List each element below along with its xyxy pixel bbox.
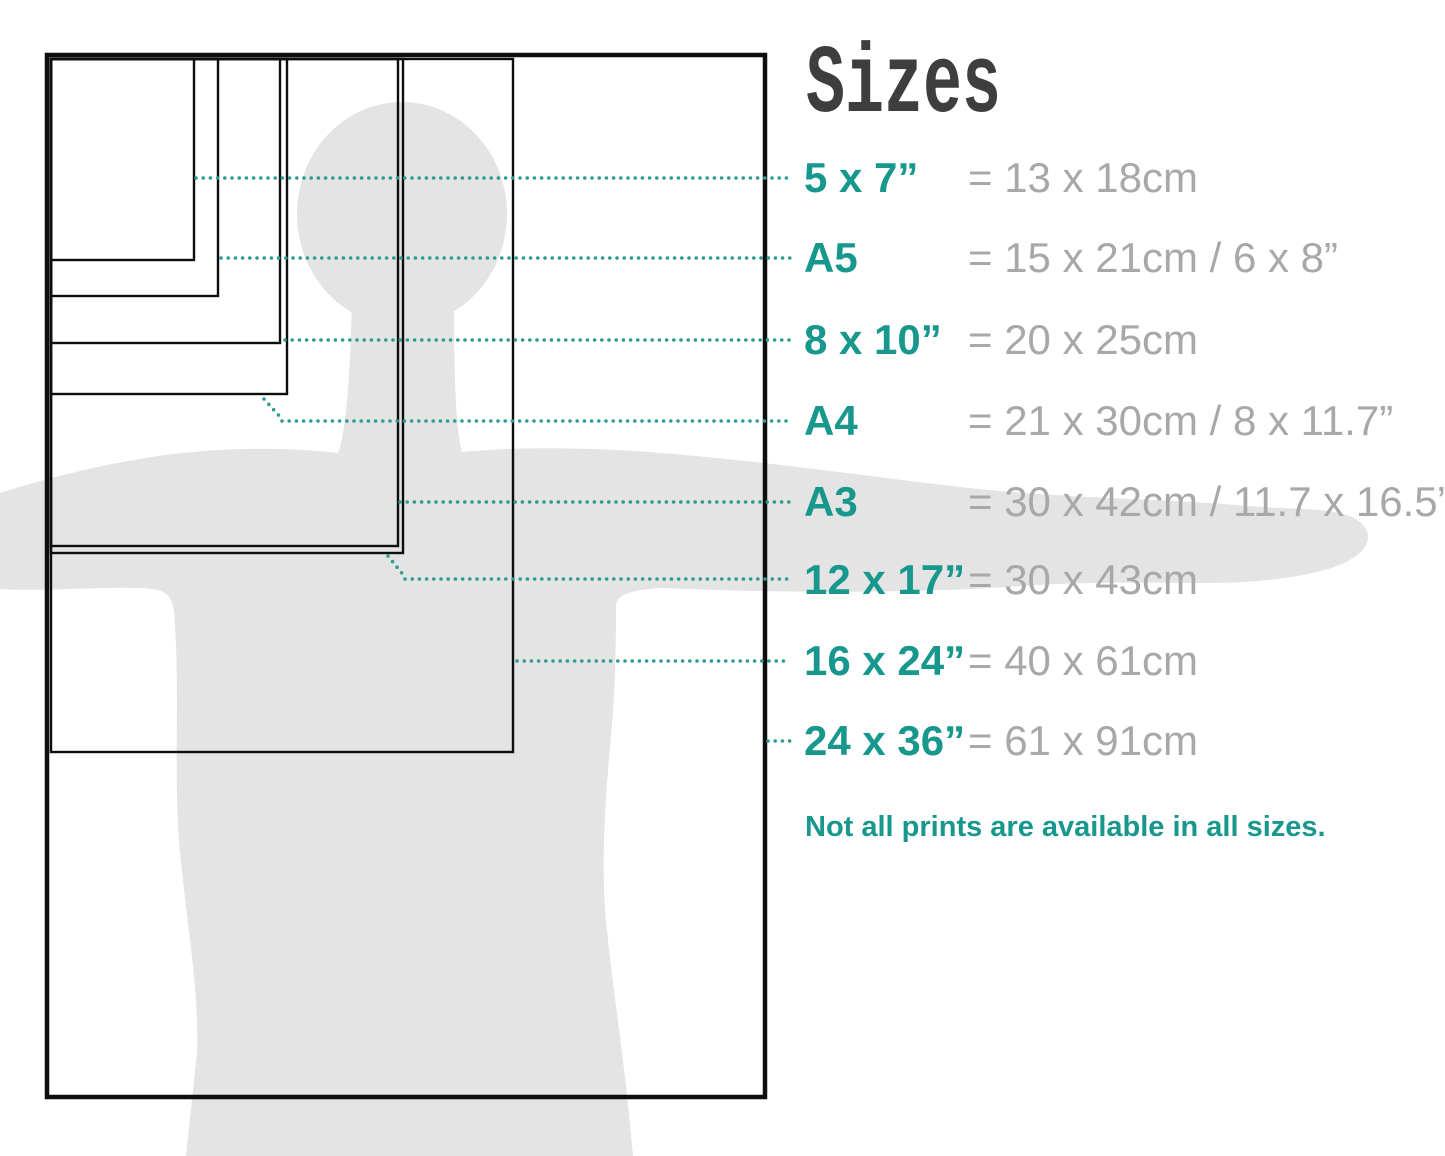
availability-note: Not all prints are available in all size…	[805, 811, 1326, 844]
size-row-a4: A4= 21 x 30cm / 8 x 11.7”	[804, 393, 1445, 449]
size-guide-infographic: Sizes 5 x 7”= 13 x 18cmA5= 15 x 21cm / 6…	[0, 0, 1445, 1156]
size-label-5x7: 5 x 7”	[804, 154, 968, 202]
size-label-8x10: 8 x 10”	[804, 316, 968, 364]
size-row-16x24: 16 x 24”= 40 x 61cm	[804, 633, 1445, 689]
size-label-16x24: 16 x 24”	[804, 637, 968, 685]
size-row-5x7: 5 x 7”= 13 x 18cm	[804, 150, 1445, 206]
size-metric-12x17: = 30 x 43cm	[968, 556, 1198, 604]
size-row-24x36: 24 x 36”= 61 x 91cm	[804, 713, 1445, 769]
size-label-12x17: 12 x 17”	[804, 556, 968, 604]
size-metric-5x7: = 13 x 18cm	[968, 154, 1198, 202]
size-metric-a5: = 15 x 21cm / 6 x 8”	[968, 234, 1338, 282]
size-metric-16x24: = 40 x 61cm	[968, 637, 1198, 685]
size-metric-a4: = 21 x 30cm / 8 x 11.7”	[968, 397, 1393, 445]
size-metric-8x10: = 20 x 25cm	[968, 316, 1198, 364]
size-metric-a3: = 30 x 42cm / 11.7 x 16.5”	[968, 478, 1445, 526]
print-frame-5x7	[51, 59, 194, 260]
size-label-a4: A4	[804, 397, 968, 445]
page-title: Sizes	[806, 38, 1001, 135]
size-row-12x17: 12 x 17”= 30 x 43cm	[804, 552, 1445, 608]
size-row-8x10: 8 x 10”= 20 x 25cm	[804, 312, 1445, 368]
size-label-a5: A5	[804, 234, 968, 282]
size-row-a5: A5= 15 x 21cm / 6 x 8”	[804, 230, 1445, 286]
size-label-a3: A3	[804, 478, 968, 526]
size-metric-24x36: = 61 x 91cm	[968, 717, 1198, 765]
size-row-a3: A3= 30 x 42cm / 11.7 x 16.5”	[804, 474, 1445, 530]
leader-line-a4	[264, 399, 790, 421]
size-label-24x36: 24 x 36”	[804, 717, 968, 765]
print-frame-8x10	[51, 59, 280, 343]
